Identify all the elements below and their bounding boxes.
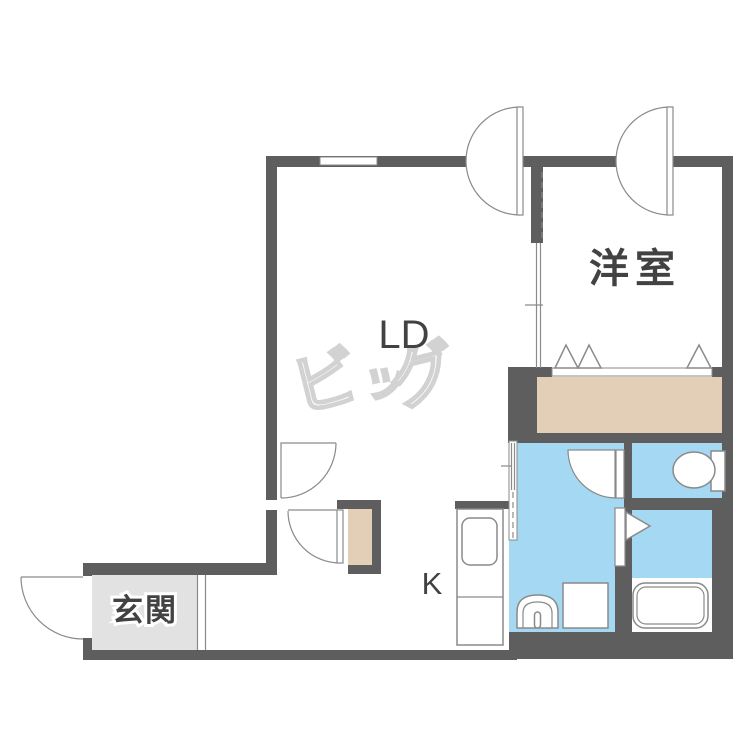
wall-ld-kitchen [455,501,509,509]
floorplan-page: ビ ッ グ [0,0,750,750]
wall-pipe-space [712,510,722,633]
ld-balcony-door-leaf [517,107,523,215]
label-kitchen: K [422,566,443,601]
wall-hallcloset-top [337,500,381,509]
hall-closet-door-swing [288,511,340,563]
wall-closet-bottom [537,433,733,443]
closet-fold-triangle-1 [555,345,578,368]
closet-fold-triangle-3 [687,345,711,368]
ld-hall-door-leaf [281,443,336,498]
wall-closet-top-left [537,367,552,377]
wall-left-upper [266,156,277,500]
wall-right [722,156,733,659]
wall-entrance-left-upper [83,563,92,576]
wall-toilet-bathroom [624,498,722,510]
label-living-dining: LD [378,313,429,357]
wall-hallcloset-right [372,509,381,574]
toilet-bowl [673,452,715,488]
ld-hall-door-swing [281,443,336,498]
washbasin-faucet [535,612,541,628]
bathtub-outer [633,583,708,628]
washroom-door-leaf [616,450,624,498]
watermark-char-1: ビ [284,338,366,426]
ld-balcony-door-swing [466,107,520,215]
hall-closet-interior [348,509,372,565]
wall-closet-top-right [712,367,722,377]
front-door-swing [21,577,83,639]
bathroom-floor [632,510,712,578]
washing-machine-pan [563,583,608,628]
closet-door-track [552,368,712,376]
wall-closet-left-block [508,367,537,443]
label-western-room: 洋室 [589,247,681,291]
wall-washroom-toilet-divider [624,443,632,498]
bedroom-closet-interior [537,377,722,433]
closet-fold-triangle-2 [578,345,601,368]
kitchen-sink [462,518,497,565]
bedroom-closet-doors [552,345,712,376]
bedroom-balcony-door-leaf [667,107,673,215]
wall-bottom-left [83,650,517,660]
window-top-wall [320,157,377,165]
hall-closet-door-leaf [337,510,343,563]
bedroom-balcony-door-swing [616,107,670,215]
floorplan-drawing: ビ ッ グ [0,0,750,750]
label-entrance: 玄関 [112,593,178,628]
wall-ld-bedroom-stub [531,167,543,243]
wall-hallcloset-bottom [348,565,381,574]
bigg-watermark: ビ ッ グ [284,332,463,426]
wall-washroom-bath-divider-lower [615,565,632,633]
wall-bottom-right [509,632,733,659]
wall-entrance-left-lower [83,638,92,650]
bathroom-folding-door-leaf [615,508,625,566]
wall-entrance-top [83,563,277,575]
